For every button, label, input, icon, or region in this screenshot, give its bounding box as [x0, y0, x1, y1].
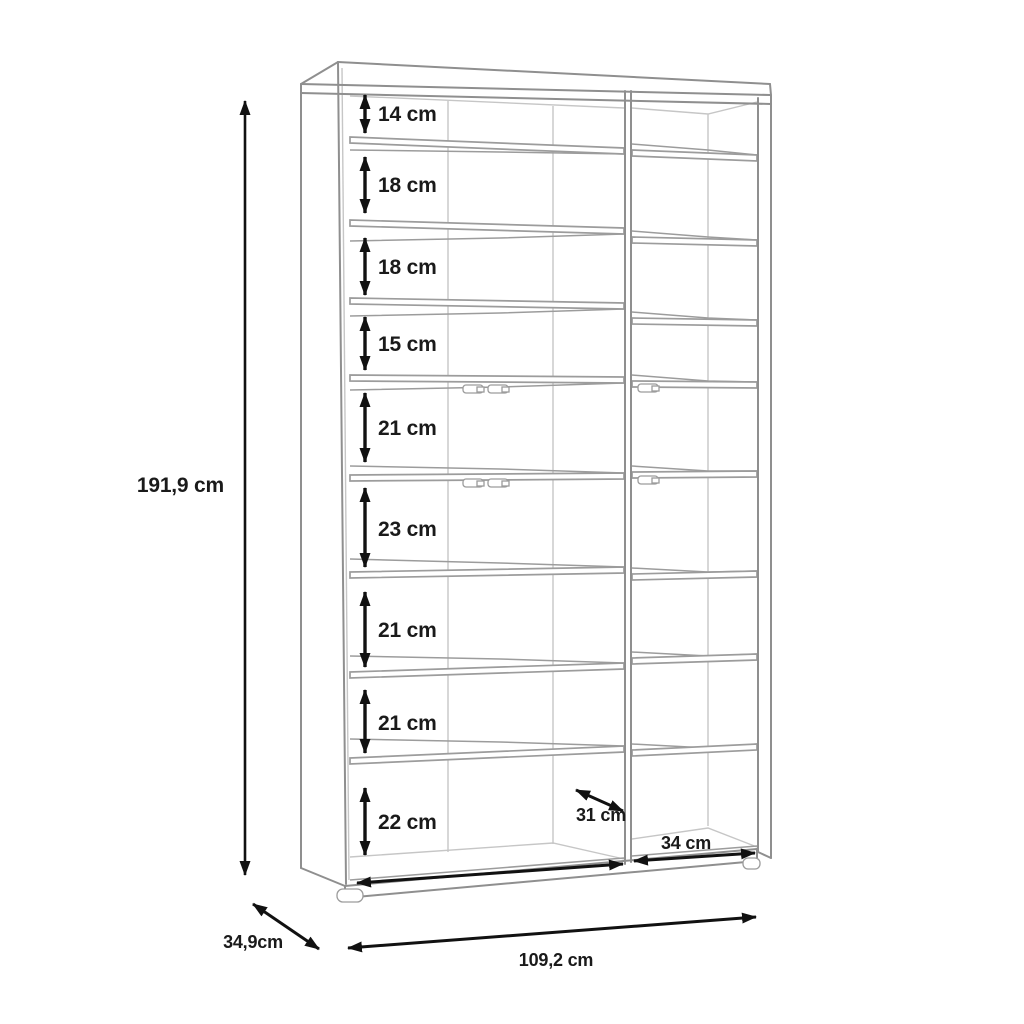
svg-text:23 cm: 23 cm	[378, 518, 437, 541]
center-divider-panel	[625, 91, 631, 864]
total-width-label: 109,2 cm	[519, 950, 593, 970]
svg-text:14 cm: 14 cm	[378, 103, 437, 126]
total-depth-label: 34,9cm	[223, 932, 283, 952]
right-side-panel	[758, 95, 771, 858]
top-board	[301, 62, 771, 104]
left-side-panel	[301, 62, 349, 886]
svg-text:22 cm: 22 cm	[378, 811, 437, 834]
interior-depth-label: 31 cm	[576, 805, 626, 825]
svg-text:18 cm: 18 cm	[378, 174, 437, 197]
svg-text:15 cm: 15 cm	[378, 333, 437, 356]
svg-text:21 cm: 21 cm	[378, 417, 437, 440]
right-foot	[743, 858, 760, 869]
left-column-shelves	[350, 137, 624, 764]
shelf-unit-dimension-drawing: 191,9 cm 14 cm 18 cm 18 cm 15 cm 21 cm 2…	[0, 0, 1024, 1024]
height-dimension-label: 191,9 cm	[137, 474, 224, 497]
dimension-diagram-canvas: 191,9 cm 14 cm 18 cm 18 cm 15 cm 21 cm 2…	[0, 0, 1024, 1024]
total-width-arrow	[348, 917, 756, 948]
left-column-width-arrow	[357, 864, 623, 883]
svg-text:21 cm: 21 cm	[378, 712, 437, 735]
svg-text:21 cm: 21 cm	[378, 619, 437, 642]
right-column-width-label: 34 cm	[661, 833, 711, 853]
compartment-dimension-labels: 14 cm 18 cm 18 cm 15 cm 21 cm 23 cm 21 c…	[378, 103, 437, 834]
svg-text:18 cm: 18 cm	[378, 256, 437, 279]
left-foot	[337, 889, 363, 902]
cabinet-structure	[301, 62, 771, 902]
right-column-shelves	[632, 144, 757, 756]
